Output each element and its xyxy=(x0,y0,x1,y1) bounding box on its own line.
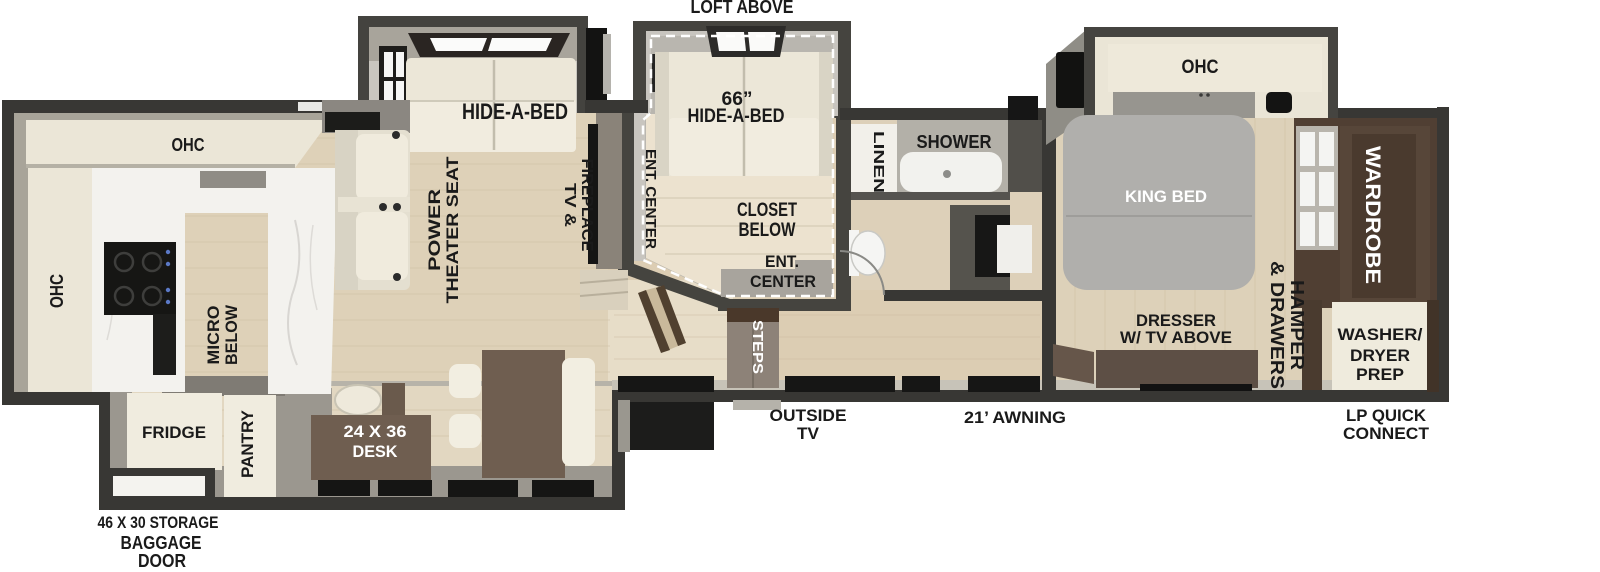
svg-text:STEPS: STEPS xyxy=(749,320,766,374)
svg-text:BAGGAGE: BAGGAGE xyxy=(121,533,202,553)
svg-text:CONNECT: CONNECT xyxy=(1343,424,1430,443)
svg-text:OHC: OHC xyxy=(1182,57,1219,78)
svg-text:LOFT ABOVE: LOFT ABOVE xyxy=(691,0,794,17)
svg-text:BELOW: BELOW xyxy=(222,304,241,365)
svg-text:ENT.: ENT. xyxy=(765,252,799,271)
svg-text:OHC: OHC xyxy=(172,135,205,155)
svg-text:FIREPLACE: FIREPLACE xyxy=(578,159,595,252)
svg-text:MICRO: MICRO xyxy=(204,306,223,365)
svg-text:DOOR: DOOR xyxy=(138,551,186,571)
svg-text:WASHER/: WASHER/ xyxy=(1338,325,1423,344)
svg-text:OHC: OHC xyxy=(47,274,67,308)
svg-text:OUTSIDE: OUTSIDE xyxy=(770,407,847,425)
svg-text:CENTER: CENTER xyxy=(750,272,816,291)
svg-text:BELOW: BELOW xyxy=(739,219,796,241)
svg-text:POWER: POWER xyxy=(425,189,444,271)
svg-text:HIDE-A-BED: HIDE-A-BED xyxy=(462,99,568,124)
svg-text:LP QUICK: LP QUICK xyxy=(1346,406,1427,425)
svg-text:46 X 30 STORAGE: 46 X 30 STORAGE xyxy=(98,513,219,532)
svg-text:DRYER: DRYER xyxy=(1350,346,1410,365)
svg-text:HIDE-A-BED: HIDE-A-BED xyxy=(688,106,785,127)
svg-text:TV &: TV & xyxy=(561,183,578,228)
svg-text:W/ TV ABOVE: W/ TV ABOVE xyxy=(1120,328,1232,347)
svg-text:21’ AWNING: 21’ AWNING xyxy=(964,408,1066,427)
svg-text:SHOWER: SHOWER xyxy=(917,132,992,152)
svg-text:LINEN: LINEN xyxy=(870,131,887,193)
svg-text:WARDROBE: WARDROBE xyxy=(1361,146,1384,284)
svg-text:ENT. CENTER: ENT. CENTER xyxy=(642,149,659,249)
svg-text:DESK: DESK xyxy=(353,443,398,461)
svg-text:FRIDGE: FRIDGE xyxy=(142,423,206,442)
svg-text:TV: TV xyxy=(797,425,819,443)
svg-text:CLOSET: CLOSET xyxy=(737,199,797,221)
svg-text:HAMPER: HAMPER xyxy=(1287,280,1307,370)
svg-text:THEATER SEAT: THEATER SEAT xyxy=(443,156,462,304)
svg-text:KING BED: KING BED xyxy=(1125,187,1207,206)
svg-text:& DRAWERS: & DRAWERS xyxy=(1267,261,1287,389)
svg-text:PANTRY: PANTRY xyxy=(238,409,257,478)
svg-text:24 X 36: 24 X 36 xyxy=(344,423,407,441)
svg-text:PREP: PREP xyxy=(1356,365,1404,384)
